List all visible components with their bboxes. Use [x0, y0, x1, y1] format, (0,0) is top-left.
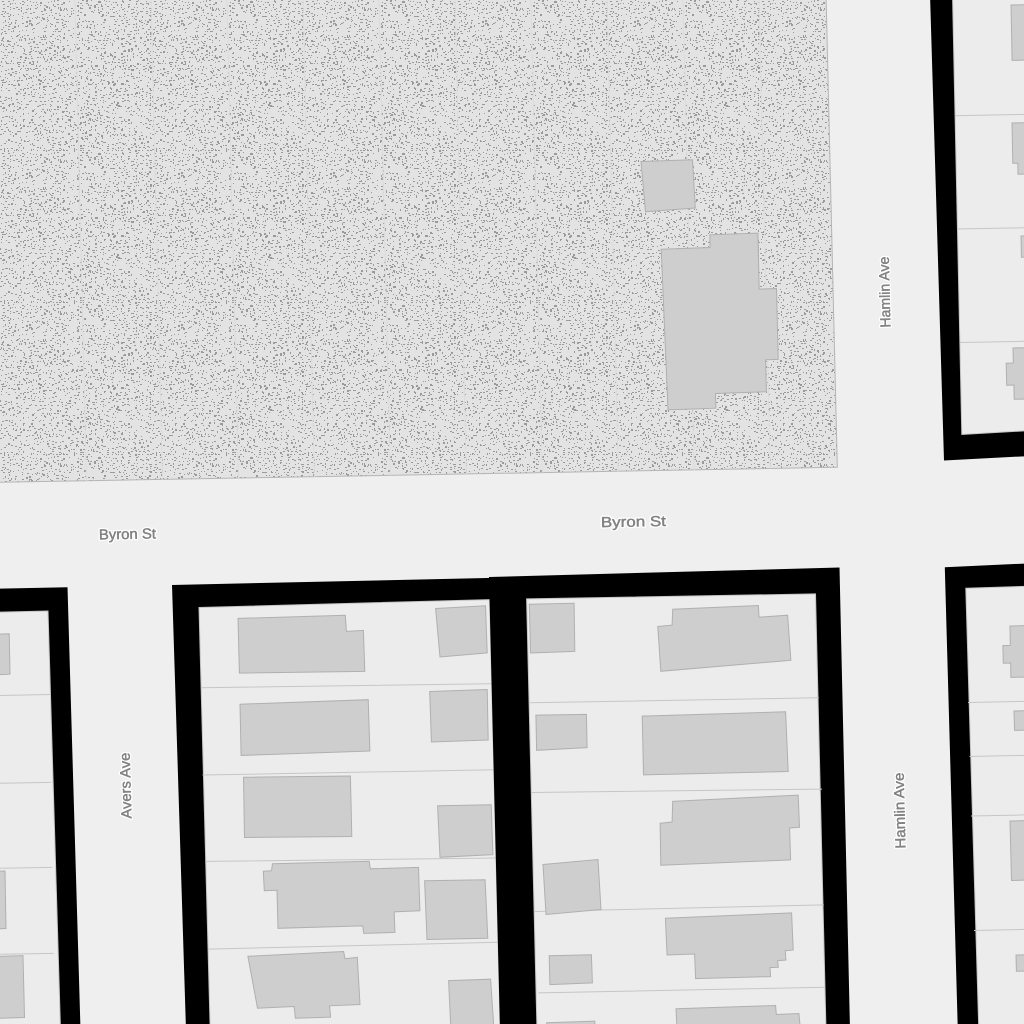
svg-text:Avers Ave: Avers Ave — [118, 752, 136, 818]
svg-text:Byron St: Byron St — [99, 526, 156, 543]
svg-text:Hamlin Ave: Hamlin Ave — [877, 256, 895, 327]
svg-text:Byron St: Byron St — [601, 514, 666, 531]
svg-text:Hamlin Ave: Hamlin Ave — [892, 772, 910, 848]
